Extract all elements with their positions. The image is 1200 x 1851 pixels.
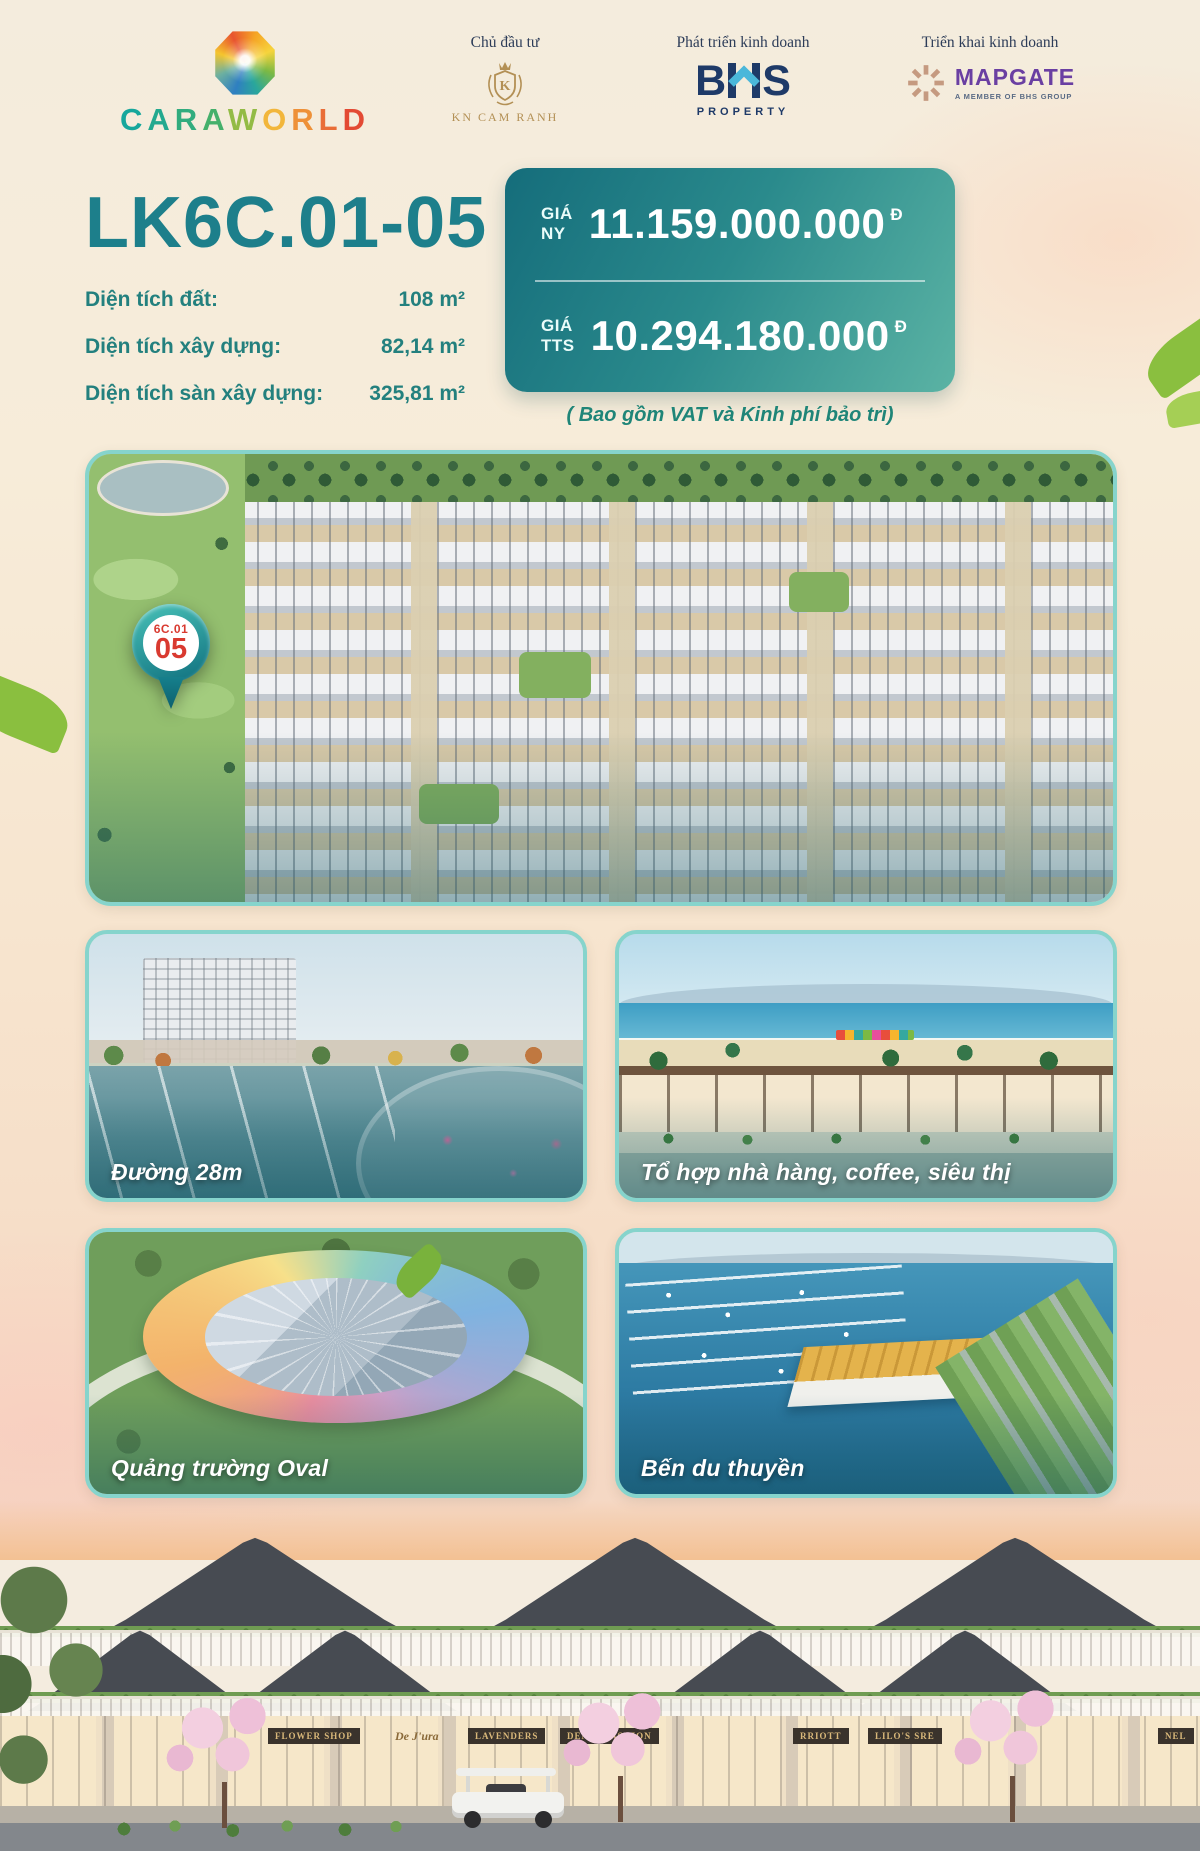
detail-label: Diện tích sàn xây dựng: (85, 382, 323, 406)
bhs-letter-s: S (762, 63, 791, 100)
photo-plaza (356, 1066, 587, 1202)
aerial-green-patch (789, 572, 849, 612)
aerial-masterplan-photo: 6C.01 05 (85, 450, 1117, 906)
area-details: Diện tích đất: 108 m² Diện tích xây dựng… (85, 288, 465, 429)
brand-letter: R (291, 102, 318, 137)
photo-colorful-sign (836, 1030, 914, 1040)
photo-hills (619, 1253, 1113, 1269)
aerial-green-patch (519, 652, 591, 698)
property-poster: CARAWORLD Chủ đầu tư K KN CAM RANH Phát … (0, 0, 1200, 1851)
mapgate-role-label: Triển khai kinh doanh (895, 34, 1085, 52)
bhs-h-chevron-icon (727, 60, 761, 100)
location-pin: 6C.01 05 (129, 604, 213, 709)
townhouse-render: FLOWER SHOP De J'ura LAVENDERS DENDI FAS… (0, 1500, 1200, 1851)
detail-row: Diện tích xây dựng: 82,14 m² (85, 335, 465, 359)
detail-row: Diện tích sàn xây dựng: 325,81 m² (85, 382, 465, 406)
photo-sky (619, 934, 1113, 1013)
photo-building (143, 958, 296, 1064)
price-row-after-tax: GIÁTTS 10.294.180.000Đ (505, 280, 955, 392)
price-value: 10.294.180.000Đ (591, 312, 908, 360)
gallery-photo-marina: Bến du thuyền (615, 1228, 1117, 1498)
price-divider (535, 280, 925, 282)
developer-name: KN CAM RANH (430, 110, 580, 125)
gallery-photo-oval-square: Quảng trường Oval (85, 1228, 587, 1498)
price-label: GIÁTTS (541, 316, 575, 355)
currency-symbol: Đ (895, 317, 908, 336)
detail-row: Diện tích đất: 108 m² (85, 288, 465, 312)
photo-oval-building (143, 1250, 528, 1423)
bhs-role-label: Phát triển kinh doanh (663, 34, 823, 52)
mapgate-star-icon (905, 62, 947, 104)
photo-caption: Bến du thuyền (641, 1455, 805, 1482)
developer-role-label: Chủ đầu tư (430, 34, 580, 52)
brand-letter: W (228, 102, 262, 137)
brand-letter: D (343, 102, 370, 137)
photo-caption: Tổ hợp nhà hàng, coffee, siêu thị (641, 1159, 1011, 1186)
brand-letter: A (147, 102, 174, 137)
leaf-decoration (1137, 310, 1200, 400)
brand-letter: R (175, 102, 202, 137)
render-shrubs (90, 1814, 430, 1844)
photo-esplanade (935, 1279, 1117, 1498)
photo-boats (639, 1269, 935, 1400)
photo-sky (619, 1232, 1113, 1269)
location-pin-balloon: 6C.01 05 (132, 604, 210, 682)
storefront-sign: LAVENDERS (468, 1728, 545, 1744)
cherry-blossom-tree (150, 1680, 300, 1800)
location-pin-tail (158, 677, 184, 709)
photo-hills (619, 984, 1113, 1005)
aerial-roads (239, 454, 1113, 902)
storefront-sign: NEL (1158, 1728, 1194, 1744)
price-row-listed: GIÁNY 11.159.000.000Đ (505, 168, 955, 280)
photo-skyline (89, 1040, 583, 1064)
svg-text:K: K (500, 79, 511, 94)
brand-letter: L (319, 102, 343, 137)
aerial-housing-grid (239, 454, 1113, 902)
mapgate-block: Triển khai kinh doanh MAPGATE A MEMBER O… (895, 34, 1085, 104)
golf-cart (452, 1768, 564, 1828)
detail-value: 82,14 m² (381, 335, 465, 359)
bhs-logo: B S (663, 60, 823, 100)
storefront-sign: LILO'S SRE (868, 1728, 942, 1744)
detail-value: 108 m² (398, 288, 465, 312)
cherry-blossom-tree (938, 1672, 1088, 1794)
pin-unit-number: 05 (155, 636, 187, 664)
photo-sky (89, 934, 583, 1040)
photo-beach (619, 1040, 1113, 1069)
price-box: GIÁNY 11.159.000.000Đ GIÁTTS 10.294.180.… (505, 168, 955, 392)
unit-title: LK6C.01-05 (85, 182, 487, 264)
detail-label: Diện tích xây dựng: (85, 335, 281, 359)
brand-letter: A (202, 102, 228, 137)
photo-caption: Quảng trường Oval (111, 1455, 328, 1482)
cherry-blossom-tree (548, 1676, 693, 1794)
price-label: GIÁNY (541, 204, 573, 243)
price-value: 11.159.000.000Đ (589, 200, 903, 248)
storefront-sign: De J'ura (388, 1728, 446, 1744)
brand-letter: O (262, 102, 291, 137)
bhs-letter-b: B (695, 63, 726, 100)
gallery-photo-beach-shops: Tổ hợp nhà hàng, coffee, siêu thị (615, 930, 1117, 1202)
green-tree (0, 1530, 160, 1810)
storefront-sign: RRIOTT (793, 1728, 849, 1744)
kn-cam-ranh-crest-icon: K (483, 60, 527, 108)
photo-marina-building (787, 1337, 999, 1407)
photo-shop-row (619, 1066, 1113, 1132)
caraworld-gem-icon (214, 30, 276, 96)
gallery-photo-road: Đường 28m (85, 930, 587, 1202)
bhs-property-label: PROPERTY (663, 106, 823, 118)
photo-umbrellas (619, 1129, 1113, 1153)
bhs-property-block: Phát triển kinh doanh B S PROPERTY (663, 34, 823, 118)
mapgate-member-label: A MEMBER OF BHS GROUP (955, 92, 1075, 101)
photo-caption: Đường 28m (111, 1159, 243, 1186)
currency-symbol: Đ (890, 205, 903, 224)
caraworld-logo: CARAWORLD (120, 30, 370, 135)
price-note: ( Bao gồm VAT và Kinh phí bảo trì) (505, 404, 955, 427)
aerial-green-patch (419, 784, 499, 824)
caraworld-wordmark: CARAWORLD (120, 104, 370, 135)
developer-block: Chủ đầu tư K KN CAM RANH (430, 34, 580, 125)
brand-letter: C (120, 102, 147, 137)
photo-sea (619, 1003, 1113, 1040)
aerial-tree-band (229, 454, 1113, 502)
leaf-decoration (0, 669, 76, 755)
aerial-lake (97, 460, 229, 516)
detail-value: 325,81 m² (369, 382, 465, 406)
mapgate-name: MAPGATE (955, 66, 1075, 89)
detail-label: Diện tích đất: (85, 288, 218, 312)
photo-piers (625, 1264, 909, 1398)
